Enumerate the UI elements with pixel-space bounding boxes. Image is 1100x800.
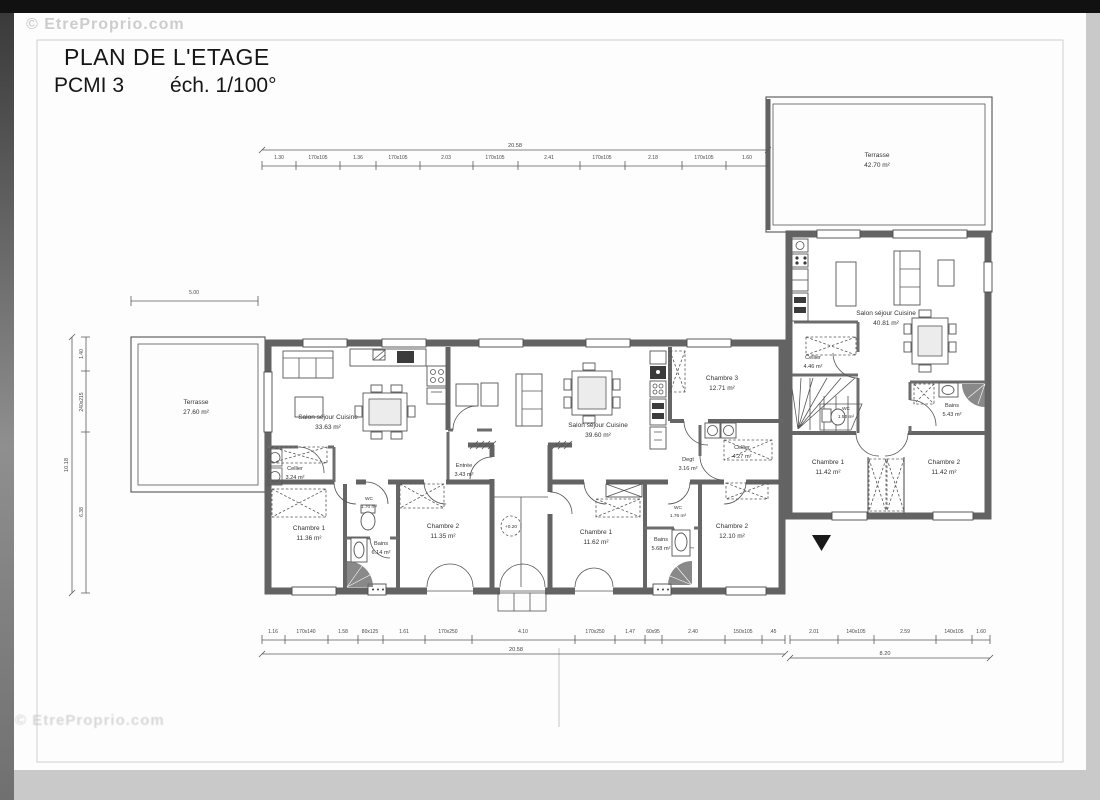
dim-top-total: 20.58 [508, 143, 522, 149]
dim-bottom-total: 20.58 [509, 647, 523, 653]
room-wc-left: WC [365, 496, 374, 502]
room-area: 6.14 m² [372, 550, 391, 556]
dim-seg: 170x105 [694, 155, 713, 161]
room-area: 12.10 m² [719, 533, 745, 540]
room-area: 40.81 m² [873, 320, 899, 327]
dim-seg: 170x105 [485, 155, 504, 161]
dim-seg: 170x250 [438, 629, 457, 635]
room-area: 1.76 m² [670, 513, 687, 519]
dim-seg: 1.61 [399, 629, 409, 635]
room-degt-mid: Degt [682, 457, 694, 463]
dim-seg: 170x105 [592, 155, 611, 161]
room-area: 4.27 m² [733, 454, 752, 460]
room-ch1-right: Chambre 1 [812, 459, 845, 466]
dimension-left: 10.18 1.40 240x215 6.38 [64, 334, 90, 596]
room-area: 5.68 m² [652, 546, 671, 552]
room-area: 3.24 m² [286, 475, 305, 481]
room-terrasse-tr: Terrasse [865, 152, 890, 159]
room-salon-left: Salon séjour Cuisine [298, 414, 358, 421]
dim-seg: 2.41 [544, 155, 554, 161]
scanned-floor-plan: © EtreProprio.com PLAN DE L'ETAGE PCMI 3… [0, 0, 1100, 800]
floor-level-marker: +0.20 [505, 524, 517, 530]
room-area: 5.43 m² [943, 412, 962, 418]
dimension-top: 20.58 1.30 170x105 1.36 170x105 2.03 170… [259, 143, 771, 170]
dimension-terrace-width: 5.00 [131, 290, 258, 306]
room-salon-mid: Salon séjour Cuisine [568, 422, 628, 429]
room-entree-left: Entrée [456, 463, 472, 469]
dim-seg: 2.01 [809, 629, 819, 635]
watermark-bottom: © EtreProprio.com [15, 712, 165, 729]
dim-seg: 60x95 [646, 629, 660, 635]
orientation-triangle [812, 535, 831, 551]
room-ch2-left: Chambre 2 [427, 523, 460, 530]
room-area: 11.42 m² [815, 469, 841, 476]
dim-seg: 140x105 [944, 629, 963, 635]
room-ch1-mid: Chambre 1 [580, 529, 613, 536]
room-area: 39.60 m² [585, 432, 611, 439]
room-wc-mid: WC [674, 505, 683, 511]
dim-seg: 1.40 [79, 349, 85, 359]
dim-seg: 4.10 [518, 629, 528, 635]
dim-seg: 150x105 [733, 629, 752, 635]
dim-seg: 6.38 [79, 507, 85, 517]
room-area: 11.62 m² [583, 539, 609, 546]
room-terrasse-left: Terrasse [184, 399, 209, 406]
dim-seg: 1.30 [274, 155, 284, 161]
dim-seg: 2.59 [900, 629, 910, 635]
door-openings [427, 587, 613, 596]
room-area: 11.36 m² [296, 535, 322, 542]
dim-terrace-width: 5.00 [189, 290, 199, 296]
dim-seg: .45 [770, 629, 777, 635]
dim-seg: 140x105 [846, 629, 865, 635]
room-cellier-mid: Cellier [734, 445, 750, 451]
dim-seg: 170x250 [585, 629, 604, 635]
room-area: 12.71 m² [709, 385, 735, 392]
room-area: 42.70 m² [864, 162, 890, 169]
room-area: 11.35 m² [430, 533, 456, 540]
dim-left-total: 10.18 [64, 458, 70, 472]
dim-seg: 1.60 [976, 629, 986, 635]
dim-right-total: 8.20 [880, 651, 891, 657]
room-area: 3.16 m² [679, 466, 698, 472]
dim-seg: 2.18 [648, 155, 658, 161]
dim-seg: 1.16 [268, 629, 278, 635]
room-area: 11.42 m² [931, 469, 957, 476]
room-bains-right: Bains [945, 403, 959, 409]
room-bains-mid: Bains [654, 537, 668, 543]
dim-seg: 2.40 [688, 629, 698, 635]
dim-seg: 170x105 [388, 155, 407, 161]
dim-seg: 1.60 [742, 155, 752, 161]
room-ch1-left: Chambre 1 [293, 525, 326, 532]
dimension-bottom-main: 1.16 170x140 1.58 80x125 1.61 170x250 4.… [259, 629, 788, 657]
room-area: 33.63 m² [315, 424, 341, 431]
dim-seg: 1.47 [625, 629, 635, 635]
dimension-bottom-right: 2.01 140x105 2.59 140x105 1.60 8.20 [787, 629, 993, 661]
dim-seg: 170x105 [308, 155, 327, 161]
room-ch2-mid: Chambre 2 [716, 523, 749, 530]
room-wc-right: WC [842, 406, 851, 412]
dim-seg: 1.36 [353, 155, 363, 161]
room-area: 1.70 m² [361, 504, 378, 510]
dim-seg: 170x140 [296, 629, 315, 635]
room-ch2-right: Chambre 2 [928, 459, 961, 466]
dim-seg: 1.58 [338, 629, 348, 635]
floor-plan-drawing: +0.20 20.58 1.30 170x105 1.36 170x105 2.… [0, 0, 1100, 800]
room-area: 4.46 m² [804, 364, 823, 370]
room-area: 27.60 m² [183, 409, 209, 416]
room-ch3-mid: Chambre 3 [706, 375, 739, 382]
room-area: 3.43 m² [455, 472, 474, 478]
room-salon-right: Salon séjour Cuisine [856, 310, 916, 317]
room-cellier-right: Cellier [805, 355, 821, 361]
dim-seg: 2.03 [441, 155, 451, 161]
room-area: 1.50 m² [838, 414, 855, 420]
dim-seg: 80x125 [362, 629, 379, 635]
room-bains-left: Bains [374, 541, 388, 547]
dim-seg: 240x215 [79, 392, 85, 411]
room-cellier-left: Cellier [287, 466, 303, 472]
